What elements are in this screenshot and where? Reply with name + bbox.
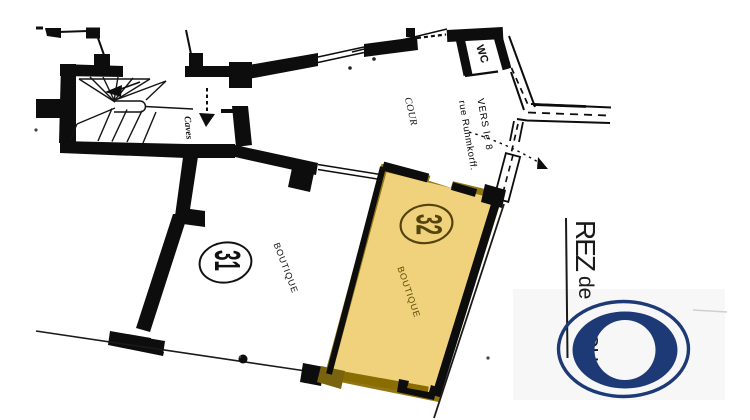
svg-text:32: 32	[408, 214, 448, 235]
svg-text:Caves: Caves	[181, 116, 193, 140]
svg-text:REZ: REZ	[570, 220, 601, 272]
svg-text:de: de	[574, 276, 597, 299]
svg-text:31: 31	[206, 250, 246, 271]
